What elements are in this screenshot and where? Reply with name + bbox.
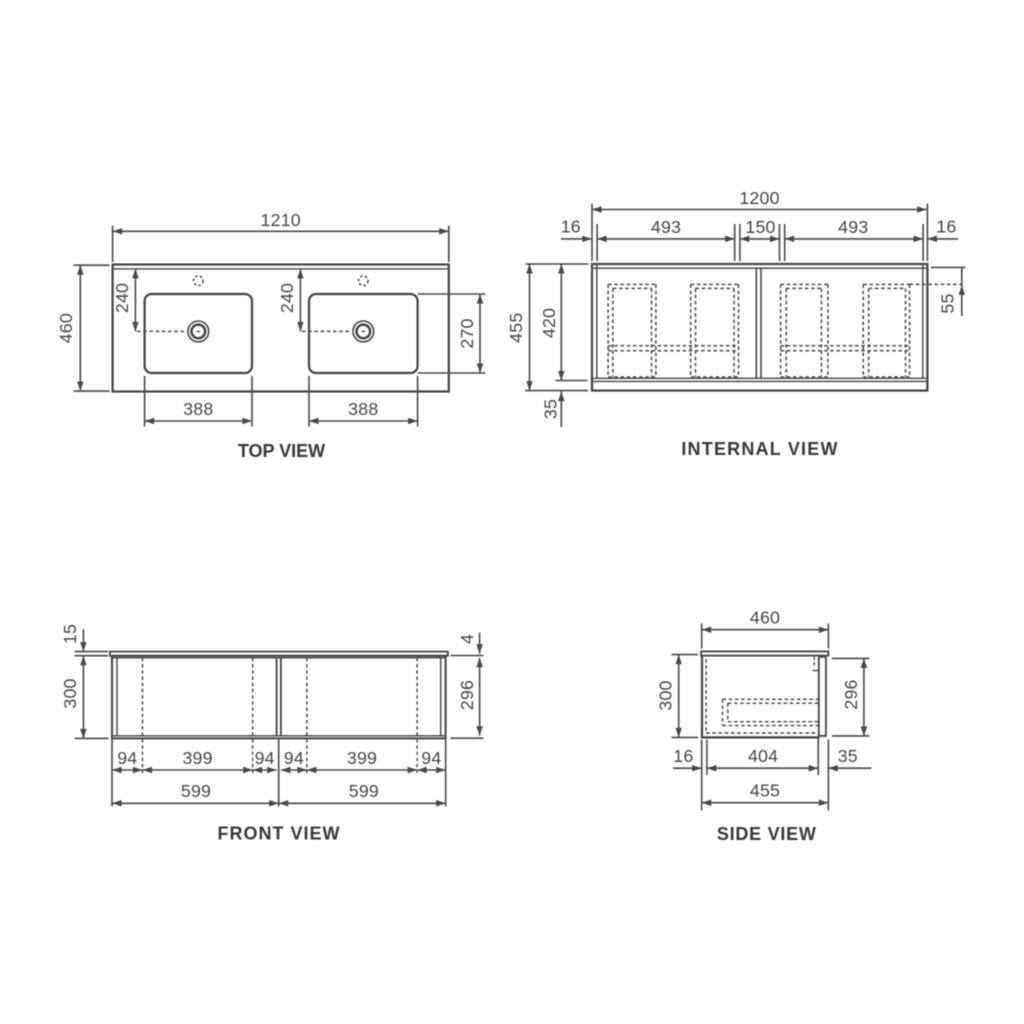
svg-text:388: 388 bbox=[348, 399, 378, 419]
svg-text:35: 35 bbox=[541, 399, 561, 419]
svg-text:55: 55 bbox=[937, 293, 957, 313]
svg-text:399: 399 bbox=[347, 748, 377, 768]
svg-text:296: 296 bbox=[841, 679, 861, 709]
svg-text:296: 296 bbox=[457, 680, 477, 710]
svg-text:94: 94 bbox=[421, 748, 441, 768]
svg-text:460: 460 bbox=[56, 313, 76, 343]
svg-text:300: 300 bbox=[656, 680, 676, 710]
svg-text:FRONT VIEW: FRONT VIEW bbox=[218, 824, 341, 844]
svg-text:INTERNAL VIEW: INTERNAL VIEW bbox=[681, 439, 838, 459]
svg-text:404: 404 bbox=[748, 746, 778, 766]
svg-text:455: 455 bbox=[750, 780, 780, 800]
svg-text:460: 460 bbox=[750, 607, 780, 627]
svg-text:599: 599 bbox=[349, 781, 379, 801]
svg-text:94: 94 bbox=[117, 748, 137, 768]
svg-text:15: 15 bbox=[60, 624, 80, 644]
svg-text:493: 493 bbox=[651, 217, 681, 237]
svg-text:94: 94 bbox=[255, 748, 275, 768]
svg-text:270: 270 bbox=[457, 318, 477, 348]
svg-text:455: 455 bbox=[506, 313, 526, 343]
svg-text:240: 240 bbox=[112, 283, 132, 313]
svg-text:240: 240 bbox=[277, 283, 297, 313]
svg-text:35: 35 bbox=[838, 746, 858, 766]
svg-text:TOP VIEW: TOP VIEW bbox=[238, 441, 325, 461]
svg-text:16: 16 bbox=[936, 216, 956, 236]
svg-text:1200: 1200 bbox=[739, 188, 779, 208]
svg-text:300: 300 bbox=[60, 678, 80, 708]
svg-text:SIDE VIEW: SIDE VIEW bbox=[717, 824, 817, 844]
svg-text:94: 94 bbox=[284, 748, 304, 768]
svg-text:388: 388 bbox=[183, 399, 213, 419]
svg-text:1210: 1210 bbox=[261, 210, 301, 230]
svg-text:16: 16 bbox=[561, 216, 581, 236]
svg-text:399: 399 bbox=[182, 748, 212, 768]
svg-text:4: 4 bbox=[457, 634, 477, 644]
svg-text:16: 16 bbox=[673, 746, 693, 766]
svg-text:493: 493 bbox=[838, 217, 868, 237]
svg-text:150: 150 bbox=[745, 217, 775, 237]
svg-text:420: 420 bbox=[539, 308, 559, 338]
svg-text:599: 599 bbox=[181, 781, 211, 801]
